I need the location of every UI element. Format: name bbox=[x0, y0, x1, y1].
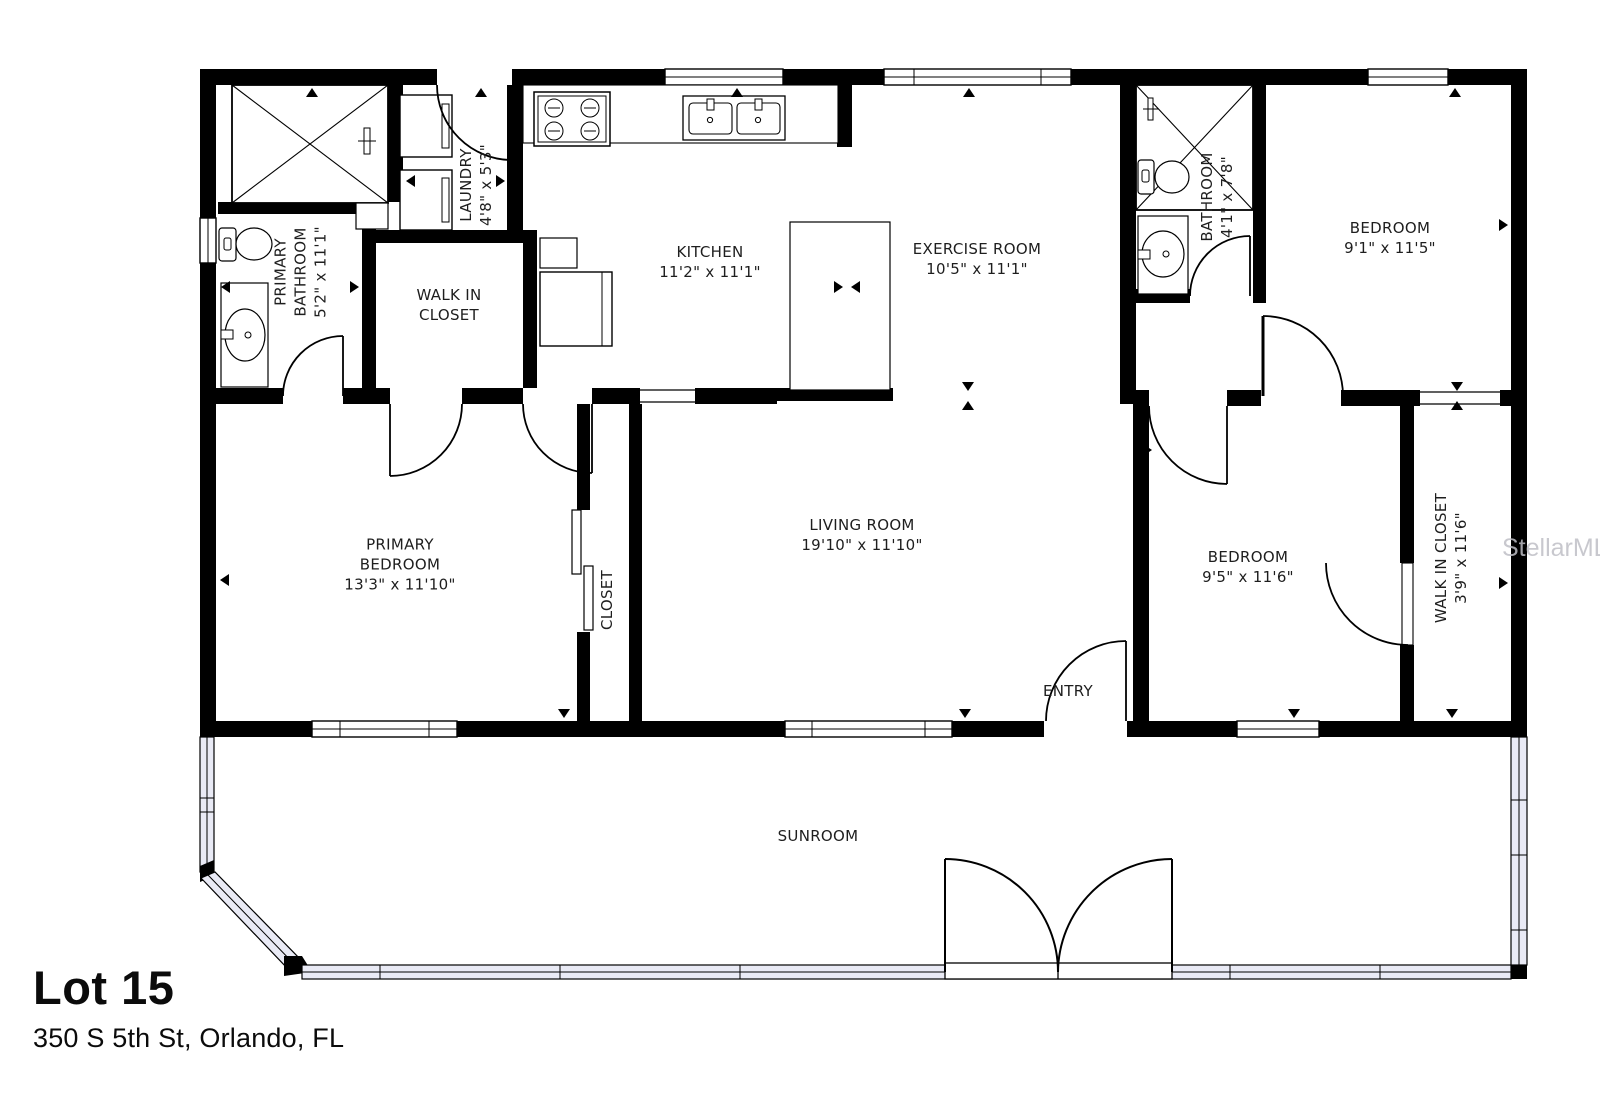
page-title: Lot 15 bbox=[33, 962, 344, 1014]
bathroom2-door bbox=[1190, 236, 1250, 296]
window-primary-bedroom bbox=[312, 721, 457, 737]
primary-sink-icon bbox=[221, 283, 268, 387]
label-kitchen: KITCHEN 11'2" x 11'1" bbox=[659, 243, 761, 283]
bathroom-door-opening bbox=[1190, 289, 1250, 303]
label-primary-bathroom: PRIMARY BATHROOM 5'2" x 11'1" bbox=[271, 197, 330, 347]
sunroom-bottom-window bbox=[302, 965, 1511, 979]
label-entry: ENTRY bbox=[1043, 682, 1093, 702]
window-primary-bath bbox=[200, 218, 216, 263]
primary-bedroom-door bbox=[390, 404, 462, 476]
label-exercise-room: EXERCISE ROOM 10'5" x 11'1" bbox=[913, 240, 1041, 280]
primary-bath-door-opening bbox=[283, 388, 343, 404]
sunroom-french-doors bbox=[945, 859, 1172, 979]
cased-opening-kitchen-living bbox=[640, 388, 695, 404]
sunroom-angled-window bbox=[201, 872, 301, 970]
label-primary-bedroom: PRIMARY BEDROOM 13'3" x 11'10" bbox=[340, 535, 460, 594]
toilet2-icon bbox=[1138, 160, 1189, 194]
window-kitchen bbox=[665, 69, 783, 85]
label-bedroom-se: BEDROOM 9'5" x 11'6" bbox=[1202, 548, 1294, 588]
washer-icon bbox=[400, 95, 452, 157]
label-laundry: LAUNDRY 4'8" x 5'3" bbox=[457, 144, 497, 226]
sunroom-corner-block3 bbox=[1511, 965, 1527, 979]
window-bedroom-ne bbox=[1368, 69, 1448, 85]
sunroom-glass-walls bbox=[200, 737, 1527, 979]
sink2-icon bbox=[1138, 216, 1188, 294]
label-bedroom-ne: BEDROOM 9'1" x 11'5" bbox=[1344, 219, 1436, 259]
window-living-room bbox=[785, 721, 952, 737]
cased-opening-bedroom-wic bbox=[1420, 390, 1500, 406]
label-closet: CLOSET bbox=[598, 570, 618, 630]
wic2-door bbox=[1326, 563, 1408, 645]
closet-door-opening bbox=[390, 388, 462, 404]
hall-door-opening bbox=[523, 388, 592, 404]
label-bathroom: BATHROOM 4'1" x 7'8" bbox=[1198, 152, 1238, 241]
watermark: StellarMLS bbox=[1502, 534, 1600, 563]
entry-door bbox=[1046, 641, 1126, 721]
label-living-room: LIVING ROOM 19'10" x 11'10" bbox=[801, 516, 922, 556]
label-sunroom: SUNROOM bbox=[778, 827, 859, 847]
fridge-icon bbox=[540, 238, 612, 346]
floorplan-drawing bbox=[0, 0, 1600, 1096]
sunroom-left-window bbox=[200, 737, 214, 872]
label-walk-in-closet: WALK IN CLOSET bbox=[399, 286, 499, 326]
kitchen-island bbox=[790, 222, 890, 390]
page-address: 350 S 5th St, Orlando, FL bbox=[33, 1023, 344, 1054]
bedroom-ne-door bbox=[1263, 316, 1343, 396]
closet-sliding-doors bbox=[572, 510, 593, 630]
laundry-door-opening bbox=[437, 69, 512, 85]
entry-door-opening bbox=[1044, 721, 1127, 737]
dryer-icon bbox=[400, 170, 452, 230]
label-walk-in-closet-2: WALK IN CLOSET 3'9" x 11'6" bbox=[1432, 493, 1472, 623]
primary-toilet-icon bbox=[219, 228, 272, 261]
bedroom-se-door bbox=[1149, 406, 1227, 484]
window-exercise bbox=[884, 69, 1071, 85]
window-bedroom-se bbox=[1237, 721, 1319, 737]
floorplan-canvas: PRIMARY BATHROOM 5'2" x 11'1" LAUNDRY 4'… bbox=[0, 0, 1600, 1096]
title-block: Lot 15 350 S 5th St, Orlando, FL bbox=[33, 962, 344, 1054]
sunroom-right-window bbox=[1511, 737, 1527, 965]
wic-door-leaf bbox=[1402, 563, 1413, 645]
kitchen-sink-icon bbox=[683, 96, 785, 140]
stove-icon bbox=[534, 92, 610, 146]
